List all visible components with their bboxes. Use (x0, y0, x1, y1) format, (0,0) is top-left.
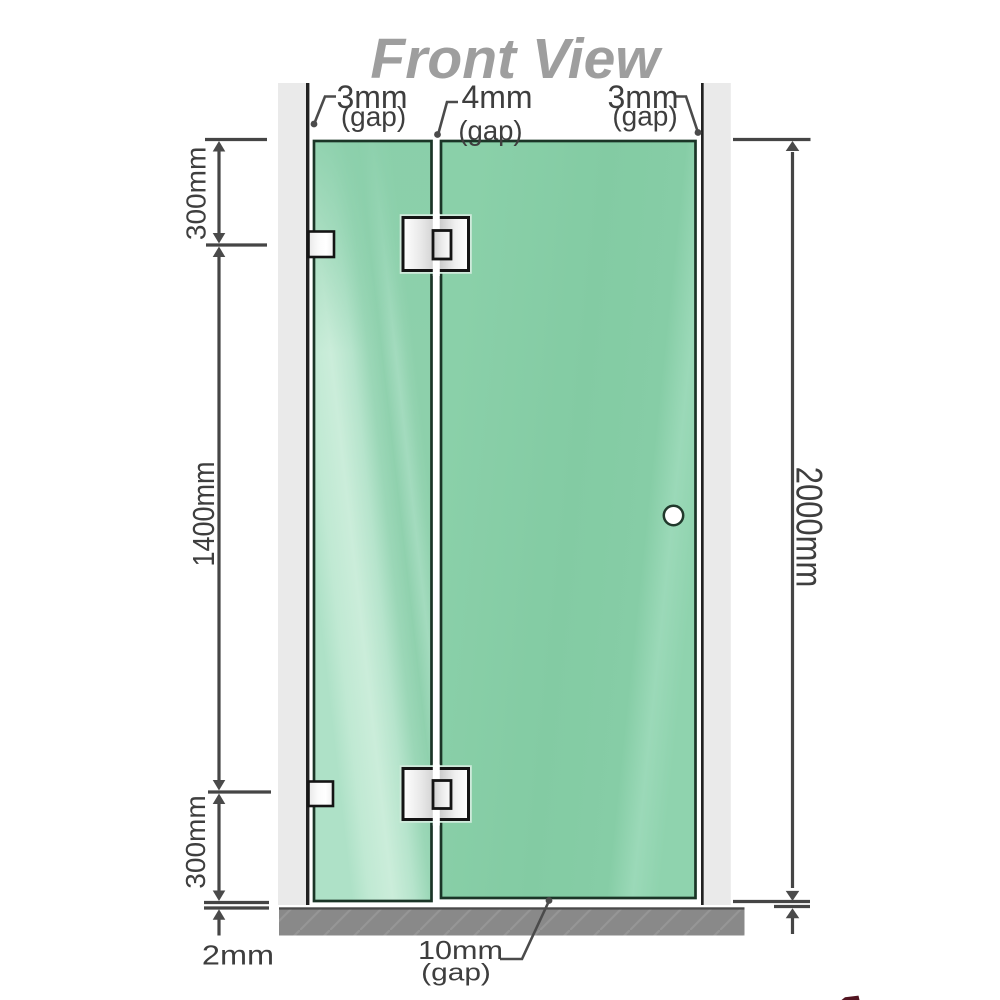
svg-text:4mm: 4mm (461, 79, 532, 115)
svg-text:(gap): (gap) (341, 101, 406, 132)
svg-text:1400mm: 1400mm (188, 461, 222, 566)
svg-text:(gap): (gap) (421, 958, 491, 986)
svg-text:(gap): (gap) (612, 101, 677, 132)
svg-text:300mm: 300mm (181, 147, 212, 240)
svg-text:2000mm: 2000mm (788, 467, 829, 588)
svg-text:2mm: 2mm (202, 940, 274, 970)
svg-text:(gap): (gap) (458, 115, 522, 146)
svg-text:300mm: 300mm (180, 795, 211, 888)
